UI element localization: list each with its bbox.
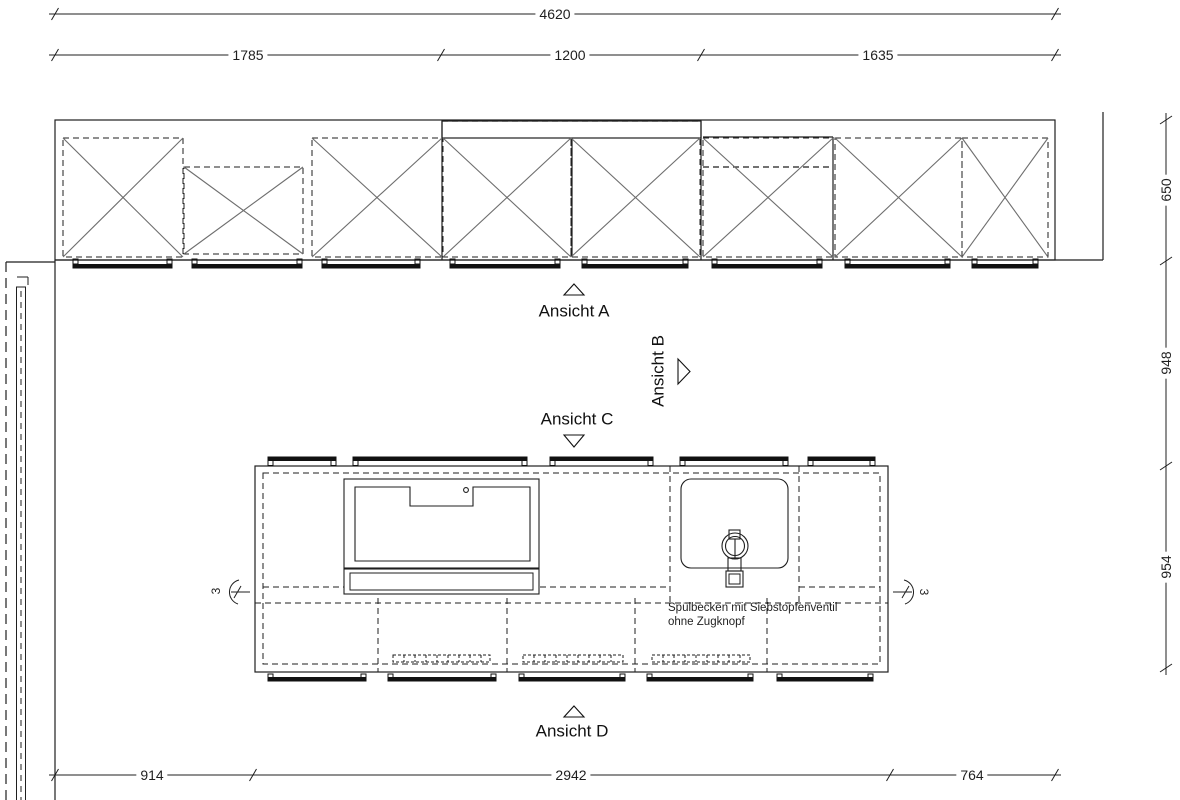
dim-top-seg-2: 1200 — [550, 47, 589, 63]
wall-cabinet-cross-marks — [63, 138, 1048, 257]
dim-bottom-seg-3: 764 — [956, 767, 987, 783]
drawing-linework — [0, 0, 1180, 800]
dim-top-seg-1: 1785 — [228, 47, 267, 63]
room-walls — [6, 112, 1103, 800]
left-radiator — [16, 277, 28, 800]
kitchen-floor-plan: 4620 1785 1200 1635 914 2942 764 650 948… — [0, 0, 1180, 800]
joint-number-right: 3 — [917, 589, 931, 596]
sink — [681, 479, 788, 587]
sink-note-line2: ohne Zugknopf — [668, 615, 837, 629]
view-label-a: Ansicht A — [539, 302, 610, 321]
dim-bottom-seg-2: 2942 — [551, 767, 590, 783]
sink-note: Spülbecken mit Siebstopfenventil ohne Zu… — [668, 601, 837, 629]
dim-bottom-seg-1: 914 — [136, 767, 167, 783]
grille-vents — [393, 655, 750, 662]
dim-right-seg-3: 954 — [1158, 551, 1174, 582]
view-label-b: Ansicht B — [649, 335, 668, 407]
view-label-c: Ansicht C — [541, 410, 614, 429]
dim-top-seg-3: 1635 — [858, 47, 897, 63]
cooktop — [344, 479, 539, 594]
dim-right-seg-2: 948 — [1158, 347, 1174, 378]
joint-number-left: 3 — [209, 588, 223, 595]
dimension-lines — [49, 8, 1172, 781]
dim-top-total: 4620 — [535, 6, 574, 22]
sink-note-line1: Spülbecken mit Siebstopfenventil — [668, 601, 837, 615]
dim-right-seg-1: 650 — [1158, 174, 1174, 205]
wall-cabinet-boxes — [63, 138, 1048, 257]
view-label-d: Ansicht D — [536, 722, 609, 741]
view-arrows — [564, 284, 690, 717]
